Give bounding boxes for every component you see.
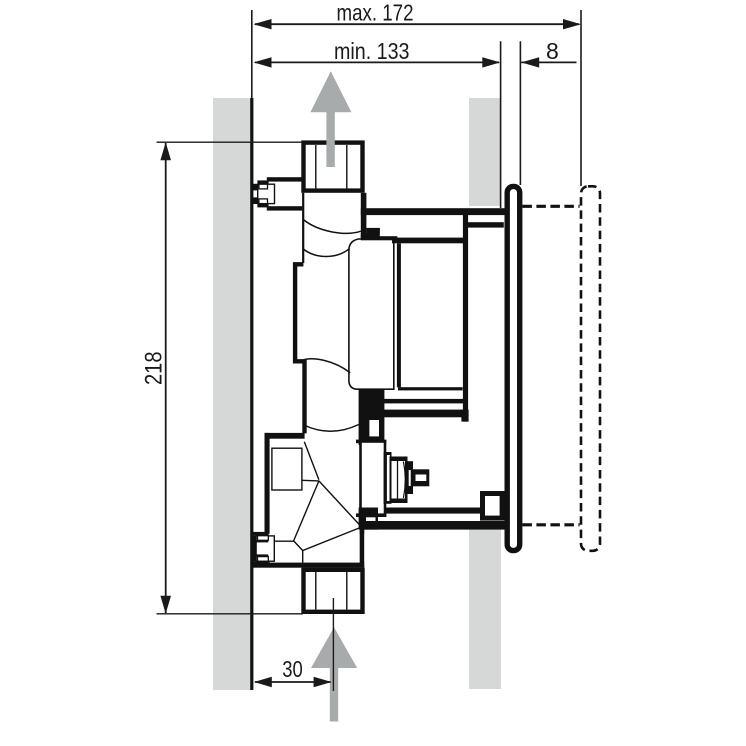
svg-text:218: 218 (141, 352, 168, 386)
svg-text:min. 133: min. 133 (334, 38, 410, 64)
svg-text:30: 30 (282, 656, 303, 682)
svg-text:8: 8 (546, 38, 559, 64)
svg-text:max. 172: max. 172 (337, 0, 414, 26)
